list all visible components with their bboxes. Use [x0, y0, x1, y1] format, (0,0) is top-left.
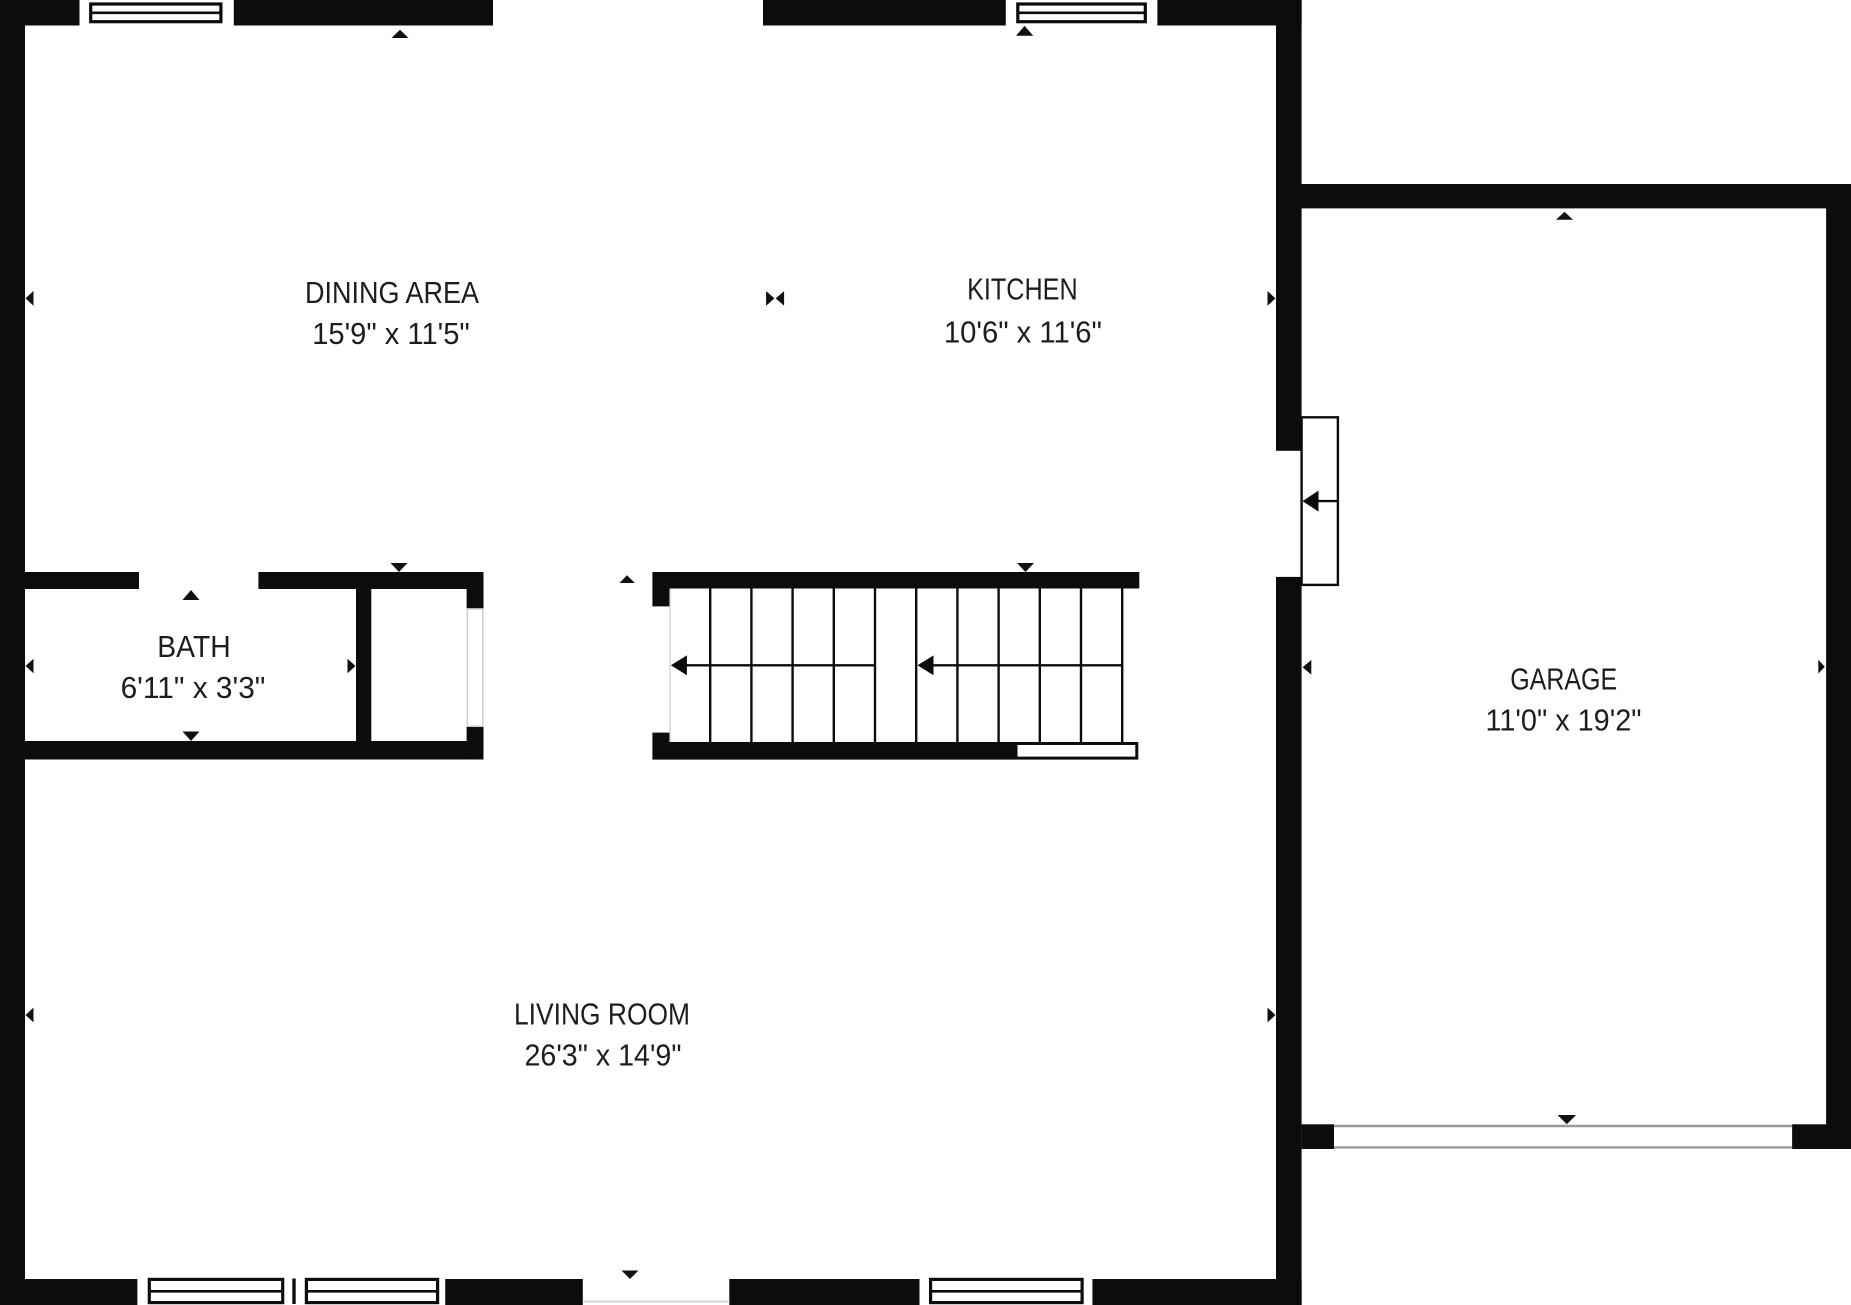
svg-text:BATH: BATH [157, 630, 230, 664]
svg-text:DINING AREA: DINING AREA [305, 276, 480, 310]
svg-text:10'6" x 11'6": 10'6" x 11'6" [944, 316, 1102, 350]
svg-text:KITCHEN: KITCHEN [967, 273, 1078, 307]
svg-text:LIVING ROOM: LIVING ROOM [514, 998, 690, 1032]
svg-text:GARAGE: GARAGE [1510, 663, 1617, 697]
svg-text:15'9" x 11'5": 15'9" x 11'5" [312, 317, 470, 351]
svg-text:6'11" x 3'3": 6'11" x 3'3" [121, 671, 266, 705]
svg-text:26'3" x 14'9": 26'3" x 14'9" [525, 1039, 682, 1073]
svg-text:11'0" x 19'2": 11'0" x 19'2" [1486, 704, 1642, 738]
